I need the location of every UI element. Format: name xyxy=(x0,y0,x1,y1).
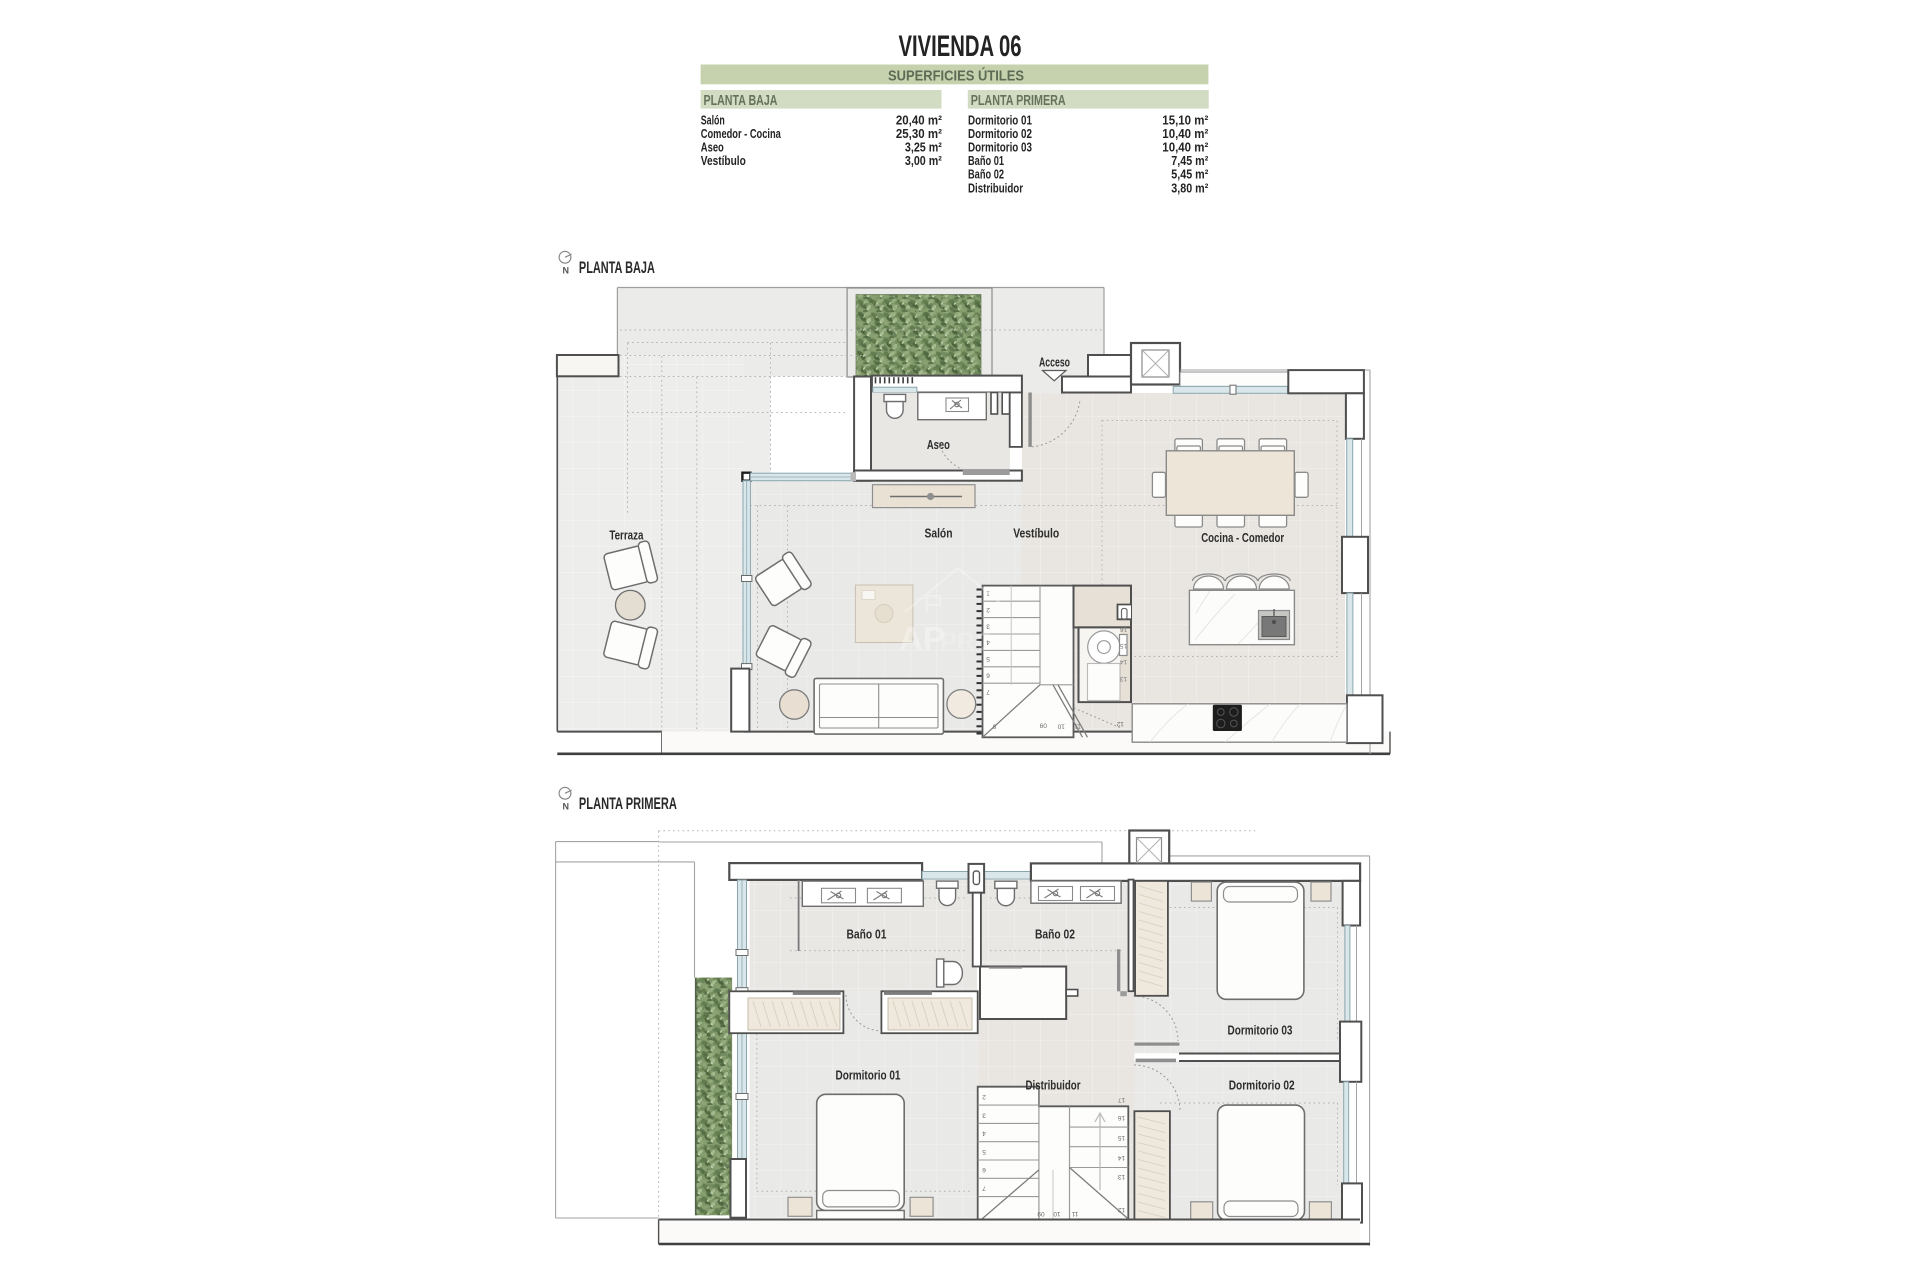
svg-text:Salón: Salón xyxy=(701,113,725,127)
svg-text:N: N xyxy=(563,266,570,276)
svg-text:14: 14 xyxy=(1118,1154,1126,1161)
svg-text:Dormitorio 01: Dormitorio 01 xyxy=(968,113,1032,127)
svg-text:16: 16 xyxy=(1118,1114,1126,1121)
svg-text:PLANTA PRIMERA: PLANTA PRIMERA xyxy=(971,92,1066,109)
svg-text:8: 8 xyxy=(992,723,996,730)
svg-text:Baño 02: Baño 02 xyxy=(968,168,1004,182)
svg-text:3: 3 xyxy=(982,1111,986,1118)
svg-text:7: 7 xyxy=(982,1185,986,1192)
svg-text:13: 13 xyxy=(1118,1173,1126,1180)
svg-text:Cocina - Comedor: Cocina - Comedor xyxy=(1201,530,1284,545)
svg-text:Baño 02: Baño 02 xyxy=(1035,927,1075,942)
svg-text:Acceso: Acceso xyxy=(1039,356,1070,370)
svg-text:12: 12 xyxy=(1118,1206,1126,1213)
svg-text:15: 15 xyxy=(1120,642,1128,649)
svg-text:Comedor - Cocina: Comedor - Cocina xyxy=(701,127,782,141)
svg-text:14: 14 xyxy=(1120,658,1128,665)
svg-text:Distribuidor: Distribuidor xyxy=(1026,1078,1081,1093)
svg-text:Baño 01: Baño 01 xyxy=(847,927,887,942)
svg-text:6: 6 xyxy=(982,1166,986,1173)
svg-text:11: 11 xyxy=(1074,723,1081,730)
svg-text:7: 7 xyxy=(986,688,990,695)
svg-text:10: 10 xyxy=(1057,723,1065,730)
svg-text:3,00 m²: 3,00 m² xyxy=(905,154,942,168)
svg-text:VIVIENDA 06: VIVIENDA 06 xyxy=(899,30,1022,63)
svg-text:15: 15 xyxy=(1118,1134,1126,1141)
svg-text:AP: AP xyxy=(899,620,945,657)
svg-text:Dormitorio 01: Dormitorio 01 xyxy=(836,1068,901,1083)
svg-text:25,30 m²: 25,30 m² xyxy=(896,127,942,141)
svg-text:5: 5 xyxy=(982,1148,986,1155)
svg-text:2: 2 xyxy=(982,1093,986,1100)
svg-text:Terraza: Terraza xyxy=(609,528,644,543)
svg-text:PRO: PRO xyxy=(940,628,994,656)
svg-text:Dormitorio 03: Dormitorio 03 xyxy=(1228,1023,1293,1038)
svg-text:7,45 m²: 7,45 m² xyxy=(1171,154,1208,168)
svg-text:10,40 m²: 10,40 m² xyxy=(1162,141,1208,155)
svg-text:PLANTA BAJA: PLANTA BAJA xyxy=(579,258,655,277)
svg-text:09: 09 xyxy=(1039,722,1047,729)
svg-text:3,25 m²: 3,25 m² xyxy=(905,141,942,155)
svg-text:Vestíbulo: Vestíbulo xyxy=(701,154,746,168)
svg-text:20,40 m²: 20,40 m² xyxy=(896,113,942,127)
svg-text:12: 12 xyxy=(1116,720,1124,727)
svg-text:PLANTA PRIMERA: PLANTA PRIMERA xyxy=(579,794,677,813)
svg-text:Distribuidor: Distribuidor xyxy=(968,181,1023,195)
svg-text:11: 11 xyxy=(1071,1210,1078,1217)
svg-text:10: 10 xyxy=(1053,1210,1061,1217)
svg-text:N: N xyxy=(563,802,570,812)
svg-text:Aseo: Aseo xyxy=(701,141,724,155)
svg-text:4: 4 xyxy=(982,1130,986,1137)
svg-text:17: 17 xyxy=(1118,1096,1126,1103)
svg-text:5,45 m²: 5,45 m² xyxy=(1171,168,1208,182)
svg-text:PLANTA BAJA: PLANTA BAJA xyxy=(704,92,778,109)
svg-text:SUPERFICIES ÚTILES: SUPERFICIES ÚTILES xyxy=(888,67,1024,85)
svg-text:Aseo: Aseo xyxy=(927,438,950,452)
svg-text:Baño 01: Baño 01 xyxy=(968,154,1004,168)
svg-text:09: 09 xyxy=(1037,1210,1045,1217)
svg-text:3,80 m²: 3,80 m² xyxy=(1171,181,1208,195)
svg-text:6: 6 xyxy=(986,672,990,679)
svg-text:13: 13 xyxy=(1120,675,1128,682)
svg-text:Vestíbulo: Vestíbulo xyxy=(1013,526,1059,541)
svg-text:16: 16 xyxy=(1120,626,1128,633)
svg-text:5: 5 xyxy=(986,655,990,662)
svg-text:Salón: Salón xyxy=(925,526,953,541)
svg-text:2: 2 xyxy=(986,606,990,613)
svg-text:15,10 m²: 15,10 m² xyxy=(1162,113,1208,127)
svg-text:Dormitorio 02: Dormitorio 02 xyxy=(1229,1078,1295,1093)
svg-text:10,40 m²: 10,40 m² xyxy=(1162,127,1208,141)
svg-text:Dormitorio 03: Dormitorio 03 xyxy=(968,141,1032,155)
svg-text:Dormitorio 02: Dormitorio 02 xyxy=(968,127,1032,141)
